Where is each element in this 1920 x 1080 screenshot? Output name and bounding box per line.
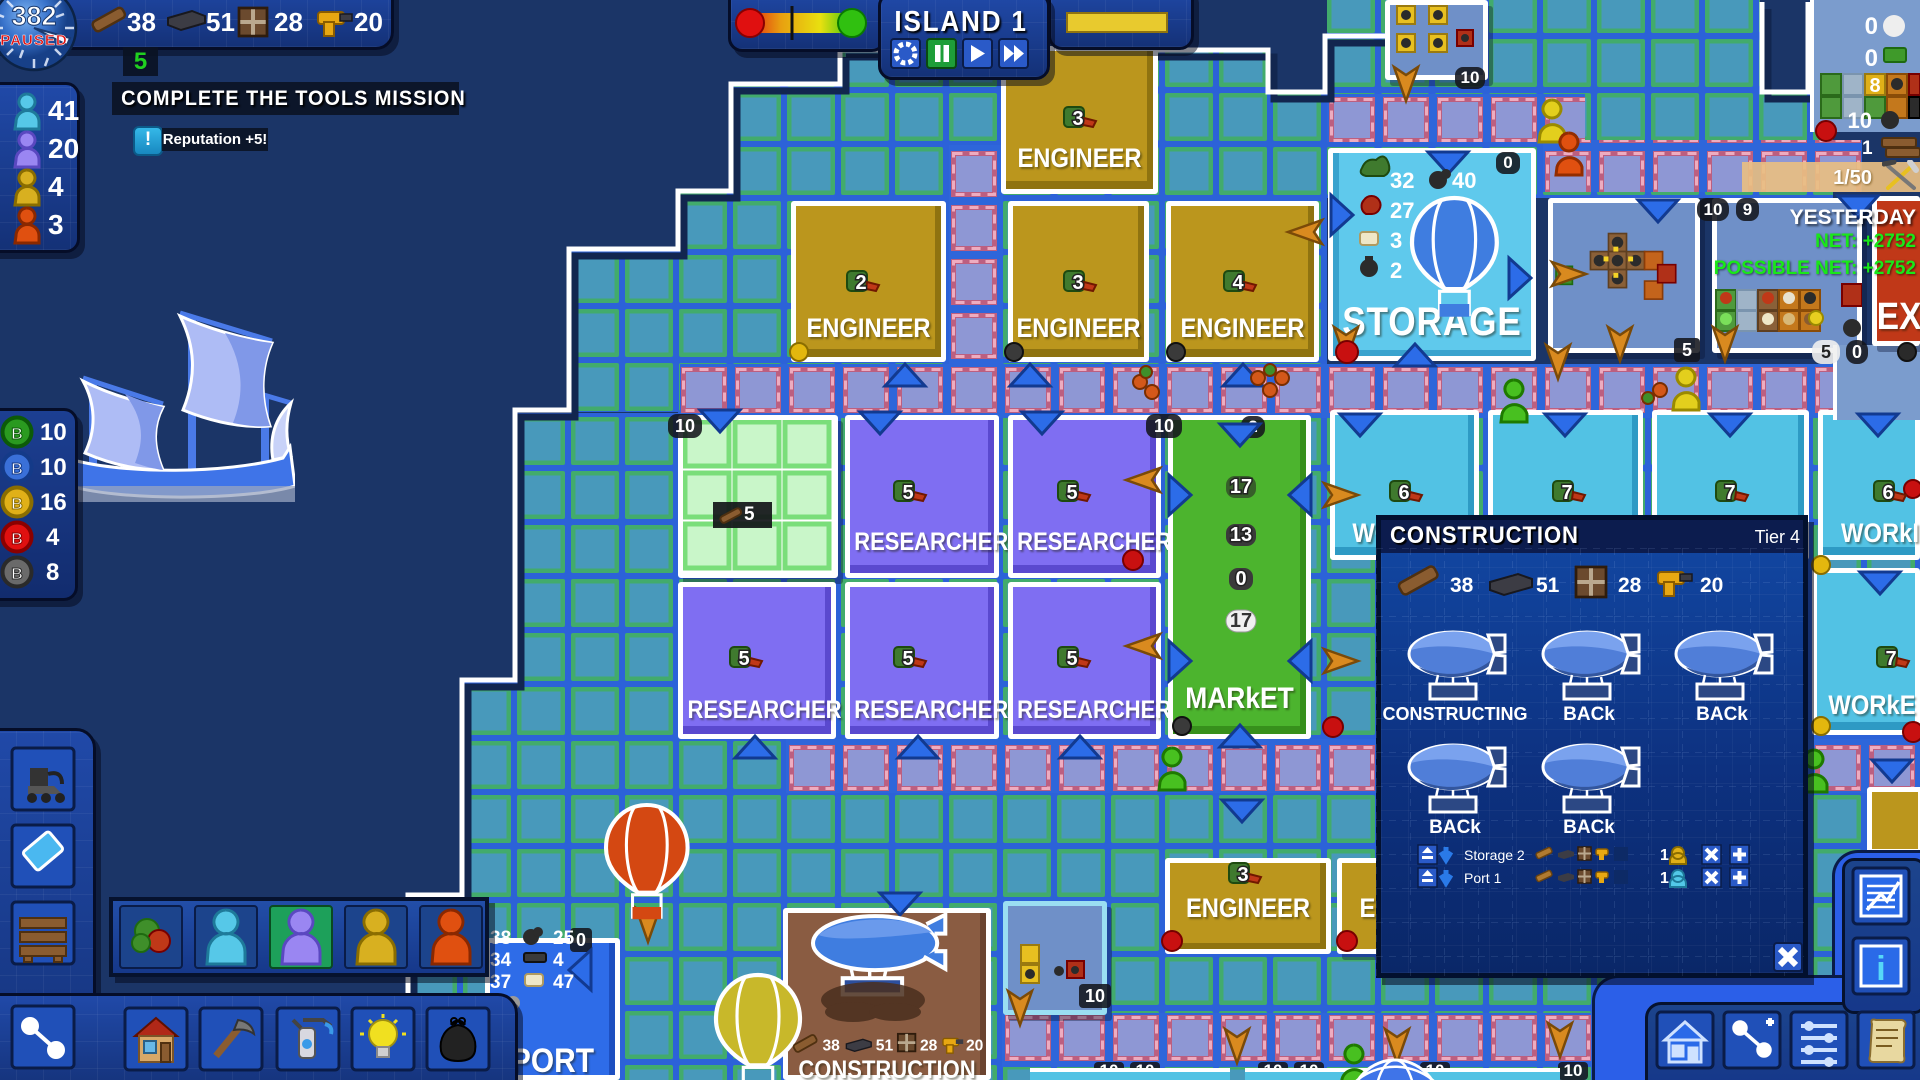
svg-text:38: 38: [822, 1037, 840, 1054]
svg-text:8: 8: [46, 559, 59, 586]
svg-text:5: 5: [738, 648, 749, 670]
svg-text:7: 7: [1561, 482, 1572, 504]
svg-text:BACk: BACk: [1696, 704, 1748, 725]
svg-text:5: 5: [902, 648, 913, 670]
svg-text:28: 28: [274, 7, 303, 37]
svg-text:4: 4: [48, 171, 64, 202]
svg-text:20: 20: [354, 7, 383, 37]
svg-text:1: 1: [1660, 870, 1669, 887]
svg-text:2: 2: [855, 272, 866, 294]
svg-text:BACk: BACk: [1563, 817, 1615, 838]
svg-text:i: i: [1876, 950, 1885, 988]
svg-text:382: 382: [11, 1, 56, 31]
svg-text:2: 2: [1390, 258, 1402, 283]
svg-text:1: 1: [1660, 847, 1669, 864]
svg-text:51: 51: [206, 7, 235, 37]
svg-text:47: 47: [553, 972, 574, 993]
svg-text:32: 32: [1390, 168, 1414, 193]
svg-text:7: 7: [1885, 648, 1896, 670]
svg-text:0: 0: [1235, 568, 1246, 590]
svg-text:20: 20: [966, 1037, 984, 1054]
svg-text:7: 7: [1724, 482, 1735, 504]
svg-text:40: 40: [1452, 168, 1476, 193]
svg-text:6: 6: [1398, 482, 1409, 504]
svg-text:16: 16: [40, 489, 67, 516]
svg-text:13: 13: [1230, 524, 1252, 546]
svg-text:CONSTRUCTING: CONSTRUCTING: [1383, 704, 1528, 724]
svg-text:38: 38: [127, 7, 156, 37]
svg-text:25: 25: [553, 928, 575, 949]
svg-text:10: 10: [40, 419, 67, 446]
svg-text:51: 51: [876, 1037, 894, 1054]
svg-text:3: 3: [1390, 228, 1402, 253]
svg-text:5: 5: [1066, 648, 1077, 670]
svg-text:20: 20: [1700, 574, 1723, 597]
svg-text:28: 28: [1618, 574, 1642, 597]
svg-text:38: 38: [1450, 574, 1474, 597]
svg-text:PAUSED: PAUSED: [0, 32, 67, 49]
svg-text:5: 5: [1066, 482, 1077, 504]
svg-text:BACk: BACk: [1563, 704, 1615, 725]
svg-text:5: 5: [902, 482, 913, 504]
svg-text:41: 41: [48, 95, 79, 126]
svg-text:6: 6: [1882, 482, 1893, 504]
svg-text:Storage 2: Storage 2: [1464, 847, 1525, 863]
svg-text:4: 4: [553, 950, 564, 971]
svg-text:BACk: BACk: [1429, 817, 1481, 838]
svg-text:20: 20: [48, 133, 79, 164]
svg-text:17: 17: [1230, 610, 1252, 632]
svg-text:3: 3: [1072, 108, 1083, 130]
svg-text:10: 10: [40, 454, 67, 481]
svg-text:17: 17: [1230, 476, 1252, 498]
svg-text:3: 3: [1072, 272, 1083, 294]
svg-text:28: 28: [920, 1037, 938, 1054]
svg-text:3: 3: [1237, 864, 1248, 886]
svg-text:3: 3: [48, 209, 64, 240]
svg-text:27: 27: [1390, 198, 1414, 223]
svg-text:4: 4: [1232, 272, 1244, 294]
svg-text:Port 1: Port 1: [1464, 870, 1502, 886]
svg-text:51: 51: [1536, 574, 1560, 597]
svg-text:4: 4: [46, 524, 60, 551]
